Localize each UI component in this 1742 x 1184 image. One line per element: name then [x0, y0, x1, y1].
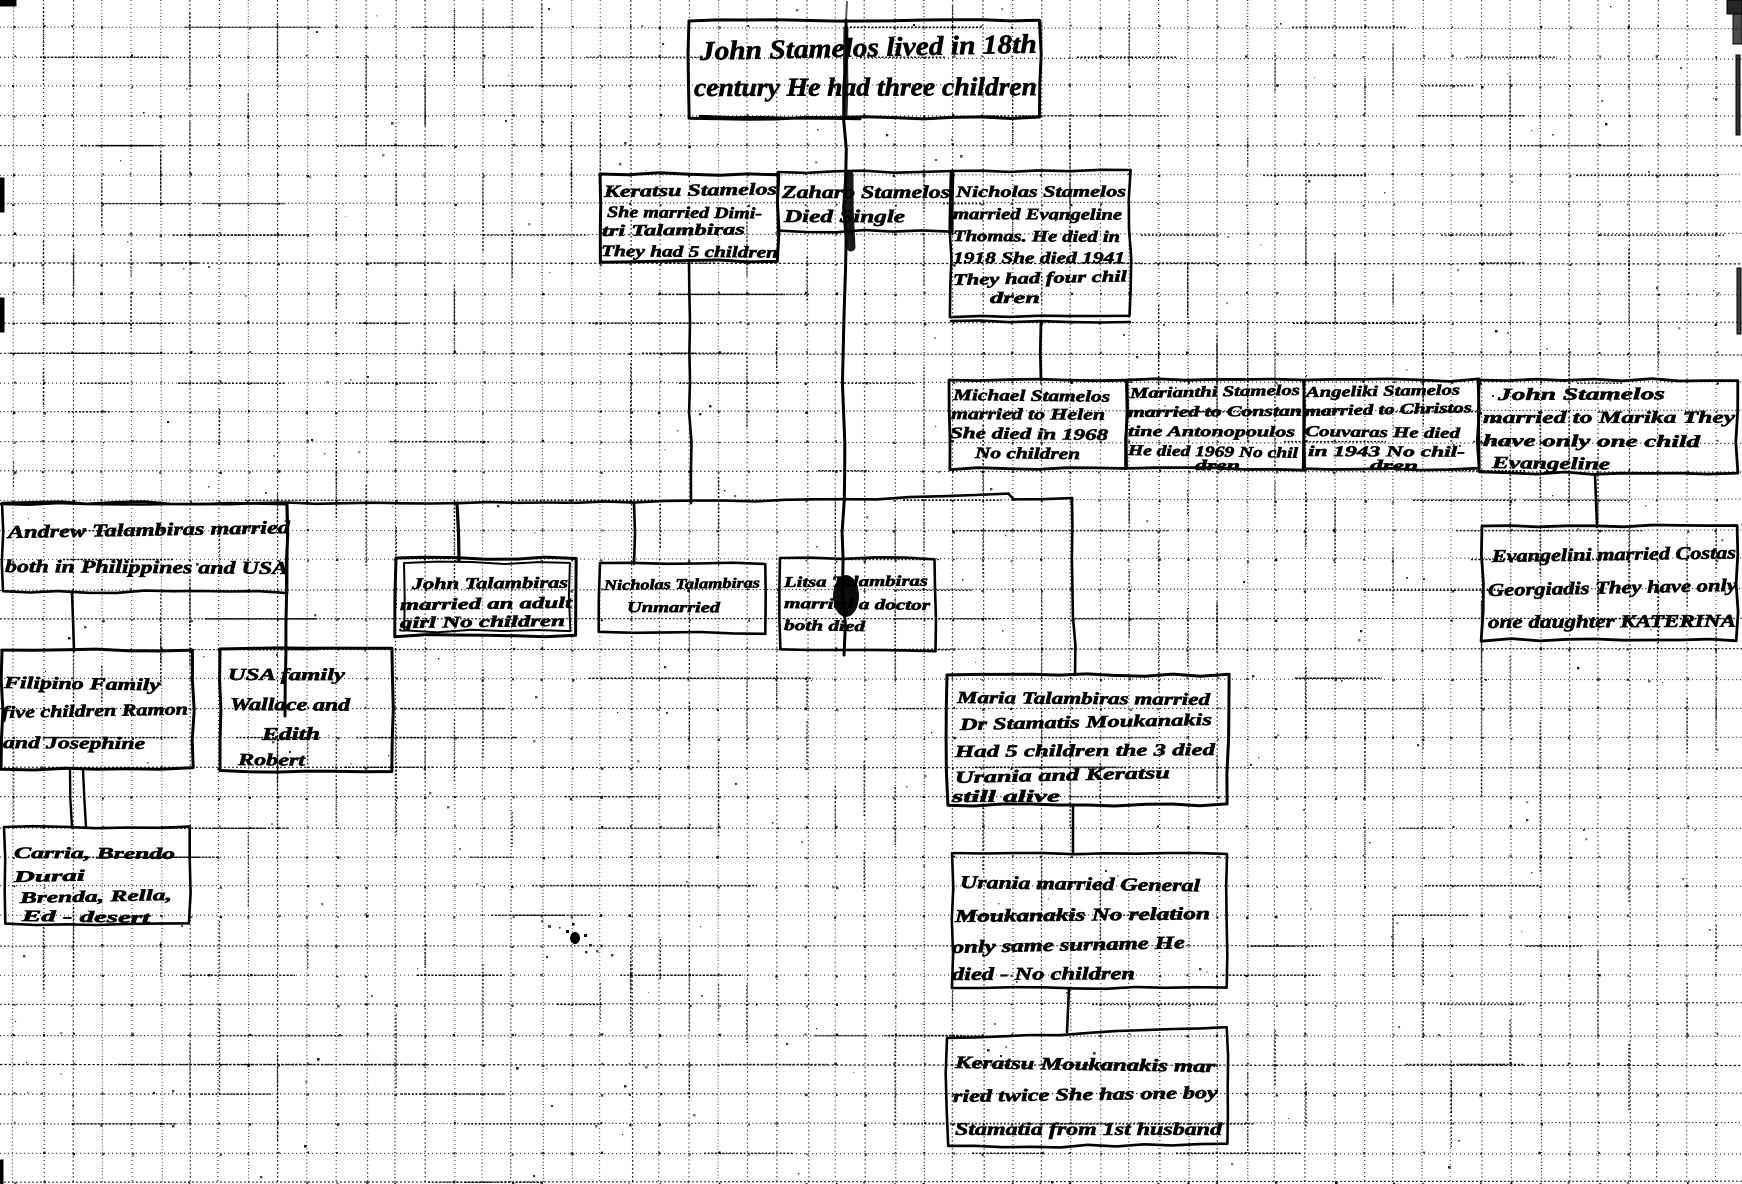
svg-text:Wallace and: Wallace and: [230, 694, 351, 715]
svg-text:Robert: Robert: [237, 750, 307, 770]
svg-text:one daughter KATERINA: one daughter KATERINA: [1488, 611, 1736, 632]
svg-text:married to Marika They: married to Marika They: [1483, 408, 1736, 427]
svg-text:No children: No children: [974, 445, 1081, 463]
svg-text:Couvaras He died: Couvaras He died: [1305, 424, 1461, 442]
svg-text:five children Ramon: five children Ramon: [2, 699, 188, 722]
svg-text:Angeliki Stamelos: Angeliki Stamelos: [1304, 383, 1460, 401]
svg-text:They had 5 children: They had 5 children: [601, 243, 778, 262]
svg-text:married Evangeline: married Evangeline: [953, 206, 1122, 224]
svg-text:Died Single: Died Single: [783, 206, 905, 226]
svg-text:1918 She died 1941: 1918 She died 1941: [953, 250, 1125, 267]
svg-text:and Josephine: and Josephine: [3, 733, 146, 753]
svg-text:dren: dren: [1370, 458, 1418, 475]
svg-text:Urania married General: Urania married General: [960, 872, 1200, 895]
svg-text:John Talambiras: John Talambiras: [410, 575, 568, 593]
svg-text:have only one child: have only one child: [1483, 431, 1701, 451]
svg-text:Zaharo Stamelos: Zaharo Stamelos: [781, 182, 950, 202]
svg-text:married to Helen: married to Helen: [951, 406, 1105, 424]
svg-text:dren: dren: [990, 290, 1040, 307]
svg-text:century He had three children: century He had three children: [694, 72, 1037, 102]
svg-text:Thomas. He died in: Thomas. He died in: [953, 228, 1120, 246]
svg-text:tri Talambiras: tri Talambiras: [602, 221, 745, 240]
svg-text:Had 5 children the 3 died: Had 5 children the 3 died: [953, 740, 1215, 761]
svg-text:Michael Stamelos: Michael Stamelos: [952, 387, 1111, 406]
svg-text:girl No children: girl No children: [398, 613, 565, 632]
svg-text:tine Antonopoulos: tine Antonopoulos: [1128, 424, 1295, 441]
svg-text:She married Dimi-: She married Dimi-: [607, 204, 762, 222]
svg-text:Evangelini married Costas: Evangelini married Costas: [1491, 542, 1736, 566]
svg-text:both in Philippines and USA: both in Philippines and USA: [5, 556, 288, 578]
svg-text:both died: both died: [784, 618, 866, 635]
svg-text:Brenda, Rella,: Brenda, Rella,: [18, 887, 172, 907]
svg-text:Stamatia from 1st husband: Stamatia from 1st husband: [955, 1119, 1222, 1139]
svg-text:Ed - desert: Ed - desert: [20, 908, 151, 927]
svg-text:Moukanakis No relation: Moukanakis No relation: [953, 903, 1210, 926]
svg-text:USA family: USA family: [228, 665, 346, 684]
svg-text:Durai: Durai: [12, 868, 86, 887]
svg-text:Filipino Family: Filipino Family: [3, 673, 161, 694]
svg-text:Carria, Brendo: Carria, Brendo: [14, 845, 175, 863]
svg-text:Nicholas Talambiras: Nicholas Talambiras: [603, 575, 761, 594]
svg-text:She died in 1968: She died in 1968: [950, 425, 1108, 444]
svg-text:died - No children: died - No children: [952, 963, 1135, 984]
svg-text:married an adult: married an adult: [400, 595, 573, 614]
svg-text:John Stamelos: John Stamelos: [1496, 384, 1665, 404]
svg-text:dren: dren: [1195, 458, 1240, 474]
svg-text:Nicholas Stamelos: Nicholas Stamelos: [955, 184, 1126, 202]
svg-text:Evangeline: Evangeline: [1490, 453, 1610, 474]
svg-text:ried twice She has one boy: ried twice She has one boy: [953, 1082, 1219, 1106]
svg-text:Keratsu Moukanakis mar: Keratsu Moukanakis mar: [954, 1052, 1216, 1076]
svg-text:Edith: Edith: [260, 724, 320, 744]
svg-text:Marianthi Stamelos: Marianthi Stamelos: [1128, 383, 1300, 402]
svg-text:Keratsu Stamelos: Keratsu Stamelos: [602, 179, 777, 201]
svg-text:Maria Talambiras married: Maria Talambiras married: [956, 688, 1211, 709]
svg-text:married to Constan: married to Constan: [1128, 404, 1302, 421]
svg-text:Unmarried: Unmarried: [627, 600, 721, 616]
svg-text:still alive: still alive: [950, 787, 1061, 806]
